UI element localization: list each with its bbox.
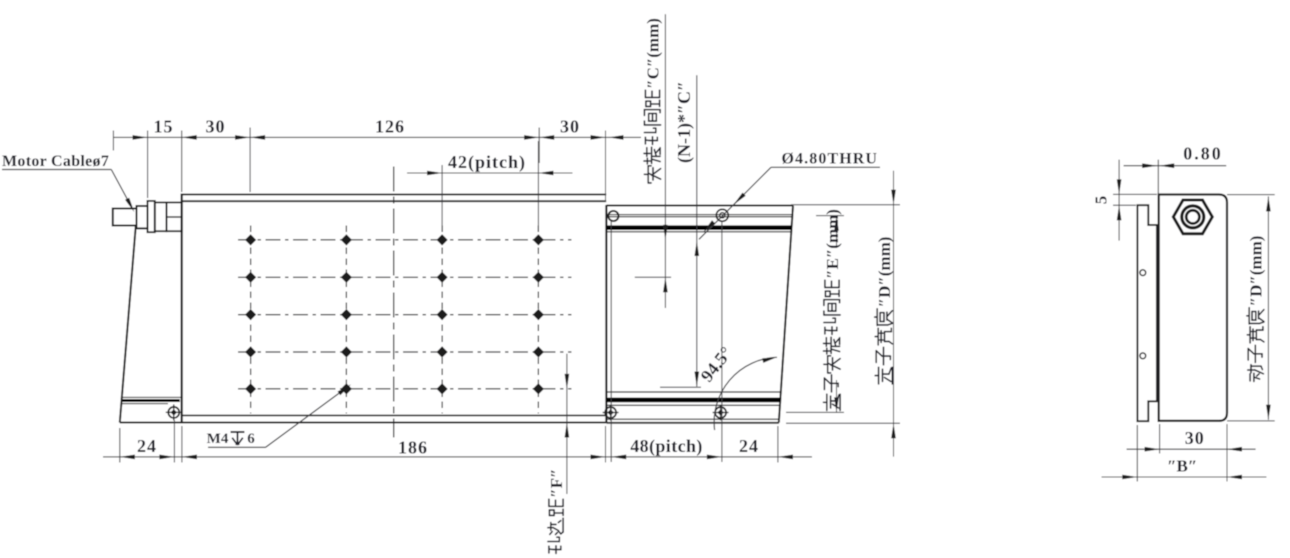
svg-text:126: 126 xyxy=(375,117,405,137)
svg-text:″F″: ″F″ xyxy=(547,469,566,498)
svg-text:24: 24 xyxy=(137,436,157,456)
svg-text:30: 30 xyxy=(560,117,580,137)
svg-text:0.80: 0.80 xyxy=(1183,144,1223,164)
svg-text:15: 15 xyxy=(154,117,174,137)
svg-text:″D″(mm): ″D″(mm) xyxy=(875,237,894,308)
svg-text:5: 5 xyxy=(1092,196,1111,205)
svg-text:″D″(mm): ″D″(mm) xyxy=(1247,236,1266,307)
svg-text:42(pitch): 42(pitch) xyxy=(448,152,526,173)
svg-text:48(pitch): 48(pitch) xyxy=(630,436,703,457)
svg-text:″B″: ″B″ xyxy=(1167,457,1197,476)
svg-text:(N-1)*″C″: (N-1)*″C″ xyxy=(674,81,695,163)
svg-text:24: 24 xyxy=(739,436,759,456)
svg-text:30: 30 xyxy=(206,117,226,137)
svg-text:Ø4.80THRU: Ø4.80THRU xyxy=(782,151,879,168)
svg-text:M4: M4 xyxy=(207,431,229,447)
svg-text:″C″(mm): ″C″(mm) xyxy=(643,18,662,89)
svg-text:6: 6 xyxy=(247,431,255,447)
svg-text:30: 30 xyxy=(1185,428,1205,448)
svg-text:Motor Cableø7: Motor Cableø7 xyxy=(2,153,109,170)
svg-text:186: 186 xyxy=(398,438,428,458)
svg-text:″E″(mm): ″E″(mm) xyxy=(823,209,842,279)
